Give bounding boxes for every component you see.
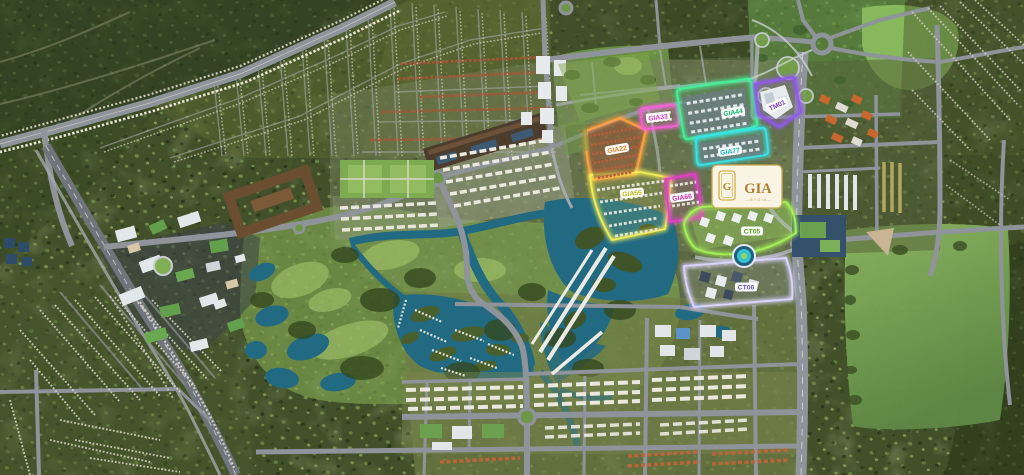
svg-text:— B Y G I A —: — B Y G I A — bbox=[745, 197, 771, 202]
svg-text:GIA: GIA bbox=[744, 181, 772, 197]
svg-text:CT05: CT05 bbox=[744, 229, 761, 236]
svg-text:G: G bbox=[723, 181, 732, 193]
svg-text:CT06: CT06 bbox=[738, 285, 755, 292]
